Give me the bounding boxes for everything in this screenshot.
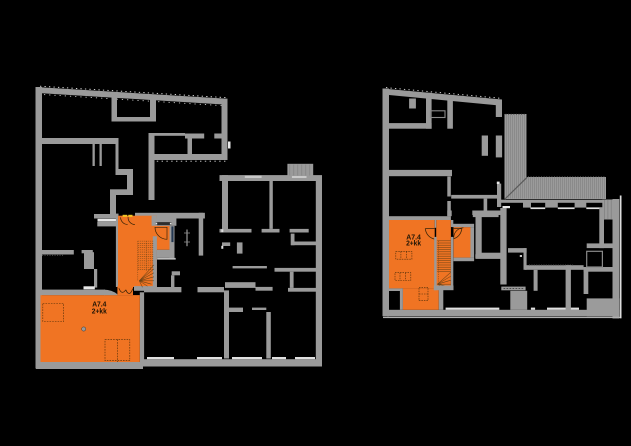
svg-text:2+kk: 2+kk bbox=[406, 239, 422, 248]
svg-text:2+kk: 2+kk bbox=[92, 307, 108, 316]
